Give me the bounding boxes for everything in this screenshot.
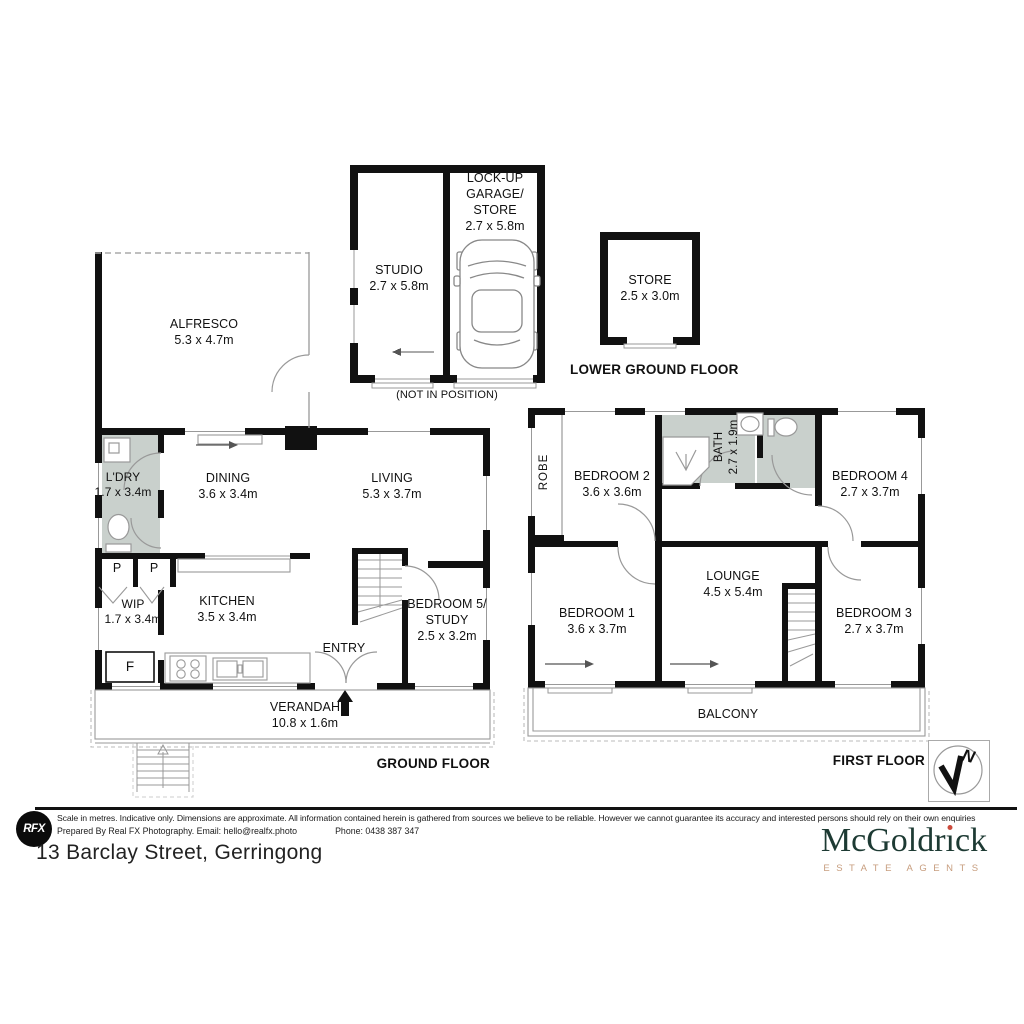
note-not-in-position: (NOT IN POSITION) [372, 388, 522, 402]
pantry-right-label: P [145, 561, 163, 575]
room-label-garage: LOCK-UP GARAGE/ STORE 2.7 x 5.8m [451, 170, 539, 234]
room-label-dining: DINING 3.6 x 3.4m [178, 470, 278, 502]
ground-floor-label: GROUND FLOOR [340, 756, 490, 771]
studio-slide-arrow-left-icon [392, 348, 434, 356]
servery-bench [178, 559, 290, 572]
room-label-kitchen: KITCHEN 3.5 x 3.4m [177, 593, 277, 625]
floorplan-page: STUDIO 2.7 x 5.8m LOCK-UP GARAGE/ STORE … [0, 0, 1024, 1024]
room-label-studio: STUDIO 2.7 x 5.8m [351, 262, 447, 294]
toilet-icon [768, 418, 797, 436]
bedroom1-slide-arrow-icon [545, 660, 594, 668]
room-label-bedroom4: BEDROOM 4 2.7 x 3.7m [818, 468, 922, 500]
agency-name-i-reddot: ı [946, 822, 955, 859]
prepared-by-text: Prepared By Real FX Photography. Email: … [57, 826, 297, 836]
alfresco-door-arc [272, 355, 309, 392]
agency-name: McGoldrıck [788, 822, 1020, 859]
room-label-bedroom5: BEDROOM 5/ STUDY 2.5 x 3.2m [401, 596, 493, 644]
north-arrow-icon: N [929, 741, 987, 799]
room-label-living: LIVING 5.3 x 3.7m [342, 470, 442, 502]
lower-ground-floor-label: LOWER GROUND FLOOR [570, 362, 730, 377]
agency-logo: McGoldrıck ESTATE AGENTS [788, 822, 1020, 874]
laundry-toilet-icon [106, 515, 131, 553]
room-label-bedroom3: BEDROOM 3 2.7 x 3.7m [824, 605, 924, 637]
room-label-bedroom2: BEDROOM 2 3.6 x 3.6m [562, 468, 662, 500]
store-door-threshold [624, 344, 676, 348]
first-floor-label: FIRST FLOOR [775, 753, 925, 768]
room-label-verandah: VERANDAH 10.8 x 1.6m [255, 699, 355, 731]
pantry-left-label: P [108, 561, 126, 575]
fridge-label: F [106, 654, 154, 680]
room-label-alfresco: ALFRESCO 5.3 x 4.7m [154, 316, 254, 348]
room-label-robe: ROBE [537, 442, 553, 502]
laundry-sink-icon [104, 438, 130, 462]
room-label-balcony: BALCONY [678, 706, 778, 722]
sink-icon [213, 658, 267, 680]
agency-tagline: ESTATE AGENTS [788, 863, 1020, 874]
room-label-laundry: L'DRY 1.7 x 3.4m [87, 470, 159, 501]
entry-label: ENTRY [304, 640, 384, 656]
phone-text: Phone: 0438 387 347 [335, 826, 419, 836]
external-stairs-icon [133, 743, 193, 797]
room-label-wip: WIP 1.7 x 3.4m [98, 597, 168, 628]
compass-rose: N [928, 740, 990, 802]
footer-divider [35, 807, 1017, 810]
room-label-bedroom1: BEDROOM 1 3.6 x 3.7m [547, 605, 647, 637]
lounge-slide-arrow-icon [670, 660, 719, 668]
property-address: 13 Barclay Street, Gerringong [36, 841, 323, 865]
disclaimer-line2: Prepared By Real FX Photography. Email: … [57, 826, 419, 836]
svg-text:N: N [960, 746, 977, 768]
car-icon [454, 240, 540, 368]
ground-stairs-icon [358, 554, 402, 622]
room-label-store: STORE 2.5 x 3.0m [602, 272, 698, 304]
room-label-bath: BATH 2.7 x 1.9m [712, 411, 742, 483]
first-floor-stairs-icon [788, 594, 815, 666]
cooktop-icon [170, 656, 206, 681]
room-label-lounge: LOUNGE 4.5 x 5.4m [683, 568, 783, 600]
